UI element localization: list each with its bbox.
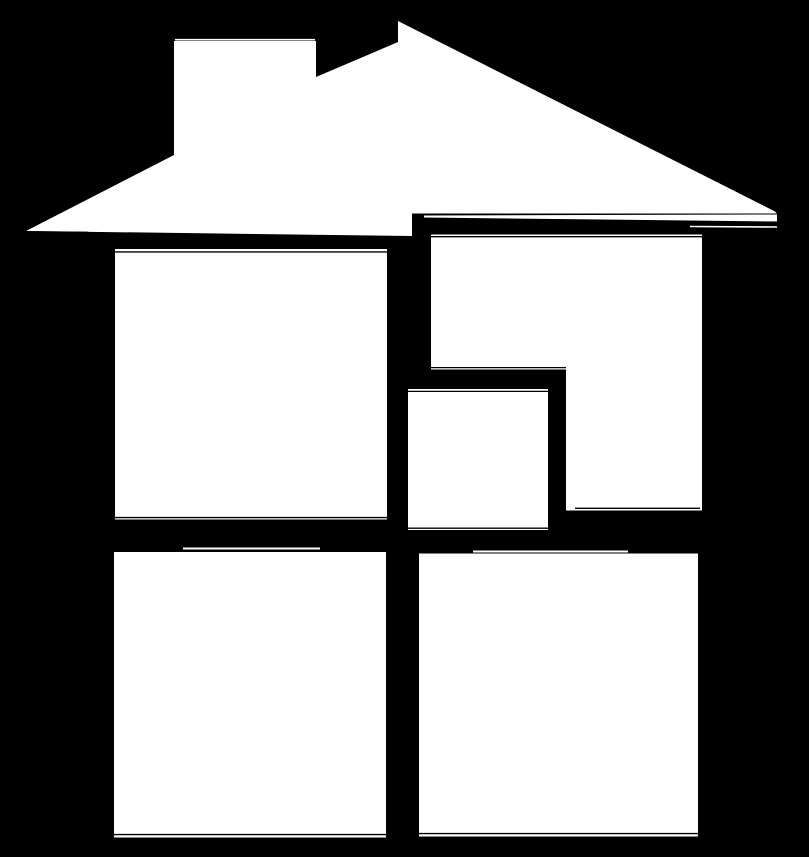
logo-canvas xyxy=(0,0,809,857)
eave-left-hairline xyxy=(27,232,88,233)
window-bottom-left xyxy=(114,552,386,838)
window-top-left xyxy=(115,249,387,520)
window-bottom-right xyxy=(419,554,698,837)
eave-right-under-hairline xyxy=(690,227,777,228)
sburb-house-logo: White house silhouette logo: peaked roof… xyxy=(0,0,809,857)
window-center xyxy=(408,389,548,530)
